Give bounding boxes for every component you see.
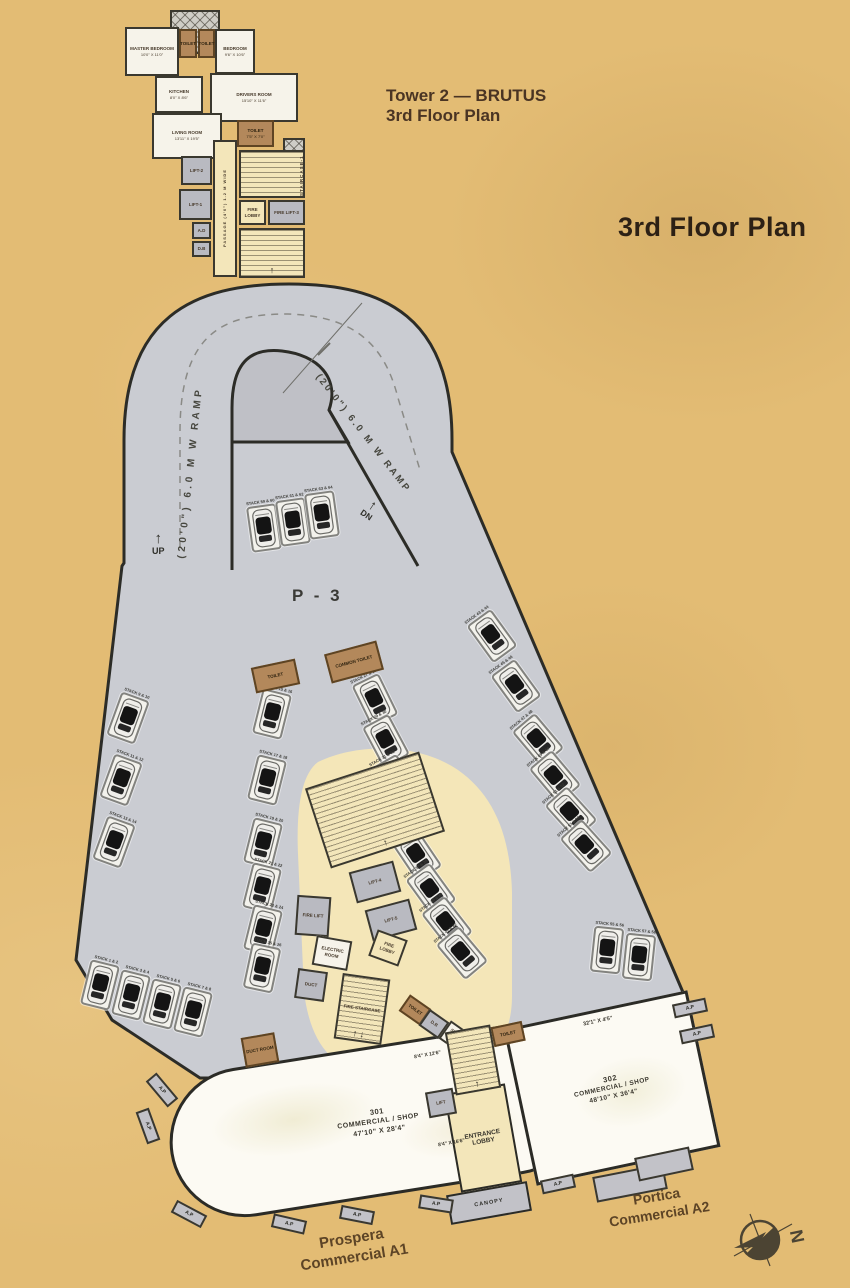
car-icon [256, 692, 287, 736]
car-icon [594, 929, 620, 971]
drivers-room: DRIVERS ROOM15'10" X 11'6" [210, 73, 298, 122]
lift-2: LIFT-2 [181, 156, 212, 185]
lift-c: LIFT [425, 1088, 457, 1118]
master-bedroom: MASTER BEDROOM10'0" X 11'0" [125, 27, 179, 76]
duct-room-2: DUCT ROOM [241, 1032, 280, 1067]
up-arrow-icon: ↑ [152, 532, 165, 546]
fire-lift: FIRE LIFT [295, 895, 332, 937]
car-icon [84, 963, 115, 1007]
car-icon [626, 936, 652, 978]
tower-title-line2: 3rd Floor Plan [386, 106, 546, 126]
fire-staircase-2-arrow-icon: ↑ ↓ [336, 1027, 381, 1042]
fire-staircase-top: ↑ [239, 228, 305, 278]
living-room: LIVING ROOM13'11" X 19'5" [152, 113, 222, 159]
car-icon [308, 494, 335, 537]
bedroom: BEDROOM9'6" X 10'6" [215, 29, 255, 74]
lift-1: LIFT-1 [179, 189, 212, 220]
duct-room-1: DUCT [294, 968, 328, 1002]
car-icon [279, 501, 306, 544]
parking-stall: STACK 63 & 64 [304, 490, 340, 540]
fire-lift-3: FIRE LIFT-3 [268, 200, 305, 225]
toilet-3: TOILET7'5" X 7'0" [237, 120, 274, 147]
toilet-1: TOILET [179, 29, 197, 58]
car-icon [115, 973, 146, 1017]
ad-duct: A.D [192, 222, 211, 239]
car-icon [251, 758, 282, 802]
canopy-label: CANOPY [474, 1197, 504, 1208]
fire-lobby-top: FIRE LOBBY [239, 200, 266, 225]
db-duct: D.B [192, 241, 211, 257]
car-icon [250, 507, 277, 550]
kitchen: KITCHEN8'0" X 8'6" [155, 76, 203, 113]
parking-stall: STACK 57 & 58 [622, 933, 657, 982]
car-icon [247, 946, 277, 990]
floor-plan-canvas: 301 COMMERCIAL / SHOP 47'10" X 28'4" 32'… [0, 0, 850, 1288]
staircase-1-label: STAIRCASE-1 [299, 155, 304, 196]
toilet-2: TOILET [198, 29, 215, 58]
car-icon [146, 982, 177, 1026]
fire-staircase-top-arrow-icon: ↑ [241, 266, 303, 275]
passage: PASSAGE (4'0") 1.2 M WIDE [213, 140, 237, 277]
ramp-up-label: UP [152, 546, 165, 556]
parking-stall: STACK 55 & 56 [590, 926, 625, 975]
car-icon [177, 990, 208, 1034]
staircase-1 [239, 150, 305, 198]
tower-title-line1: Tower 2 — BRUTUS [386, 86, 546, 106]
main-heading: 3rd Floor Plan [618, 212, 807, 243]
electric-room: ELECTRIC ROOM [312, 935, 353, 971]
p3-label: P - 3 [292, 586, 343, 606]
stair-landing [283, 138, 305, 152]
entrance-lobby-label: ENTRANCE LOBBY [461, 1127, 505, 1148]
fire-staircase-2: FIRE STAIRCASE↑ ↓ [334, 973, 391, 1045]
